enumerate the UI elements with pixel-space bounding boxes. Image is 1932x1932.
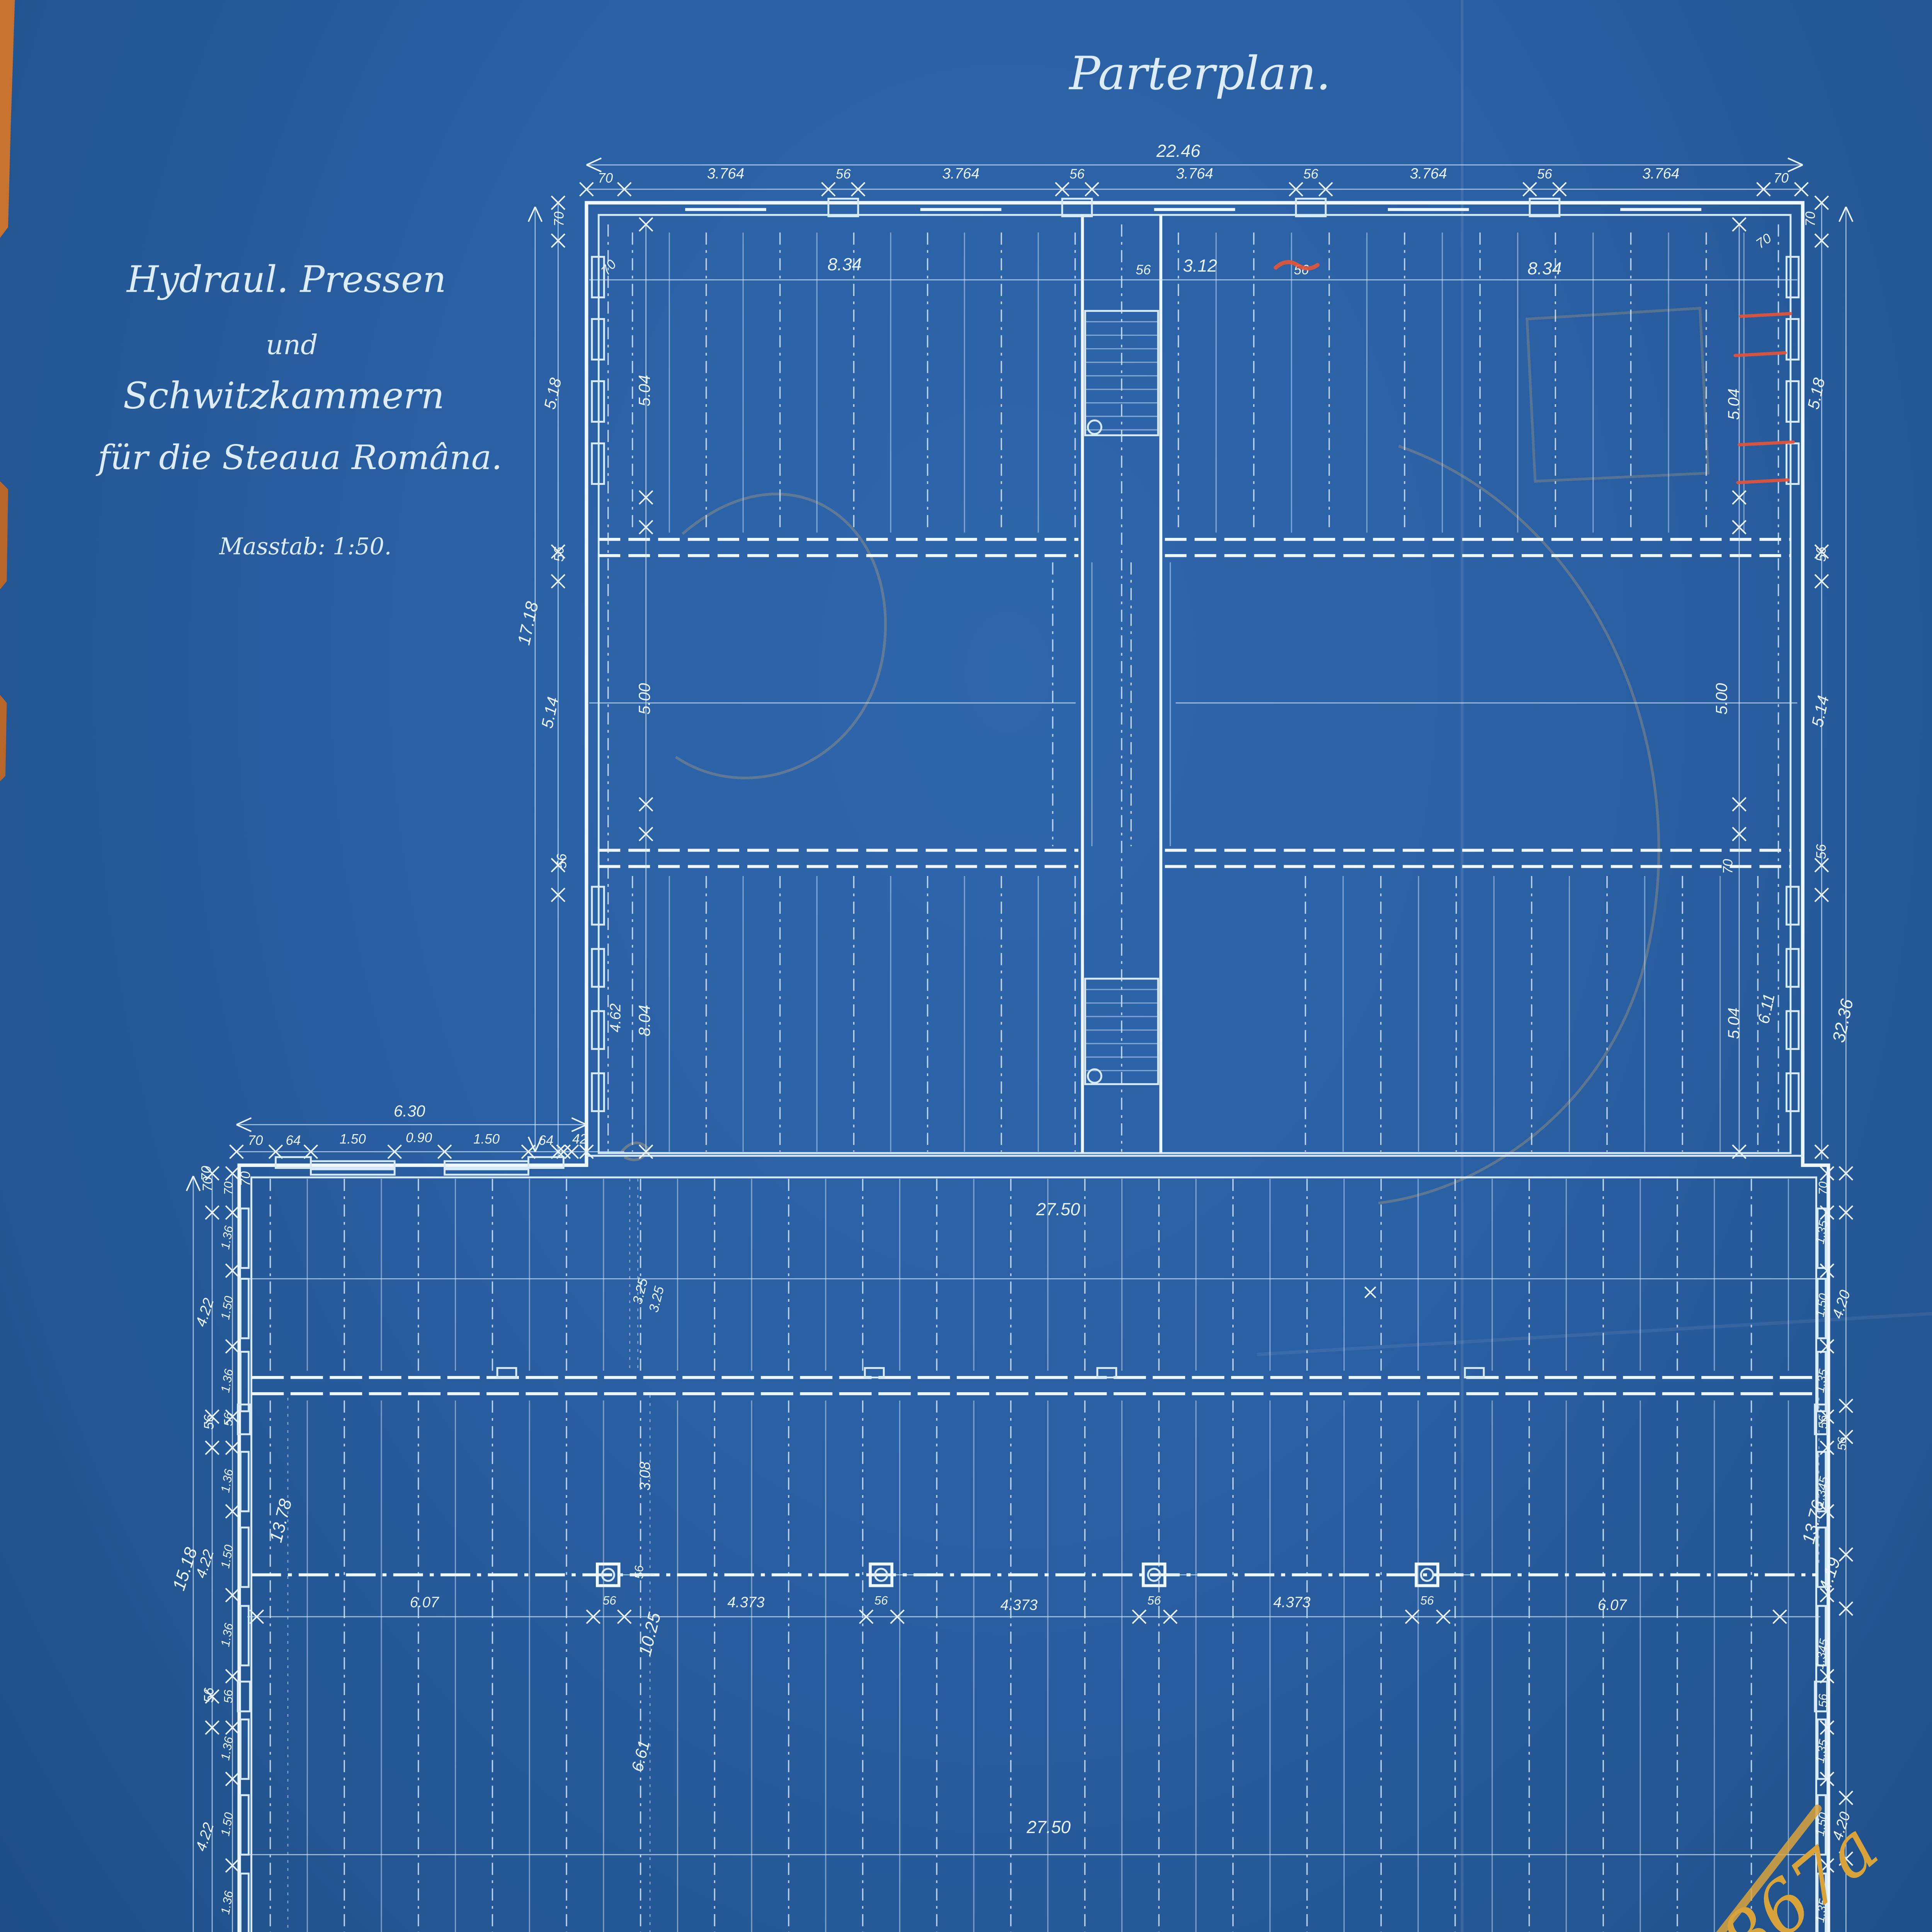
- legend-line-4: für die Steaua Româna.: [95, 438, 502, 477]
- dim-label: 1.36: [218, 1889, 236, 1915]
- dim-label: 8.04: [635, 1005, 653, 1036]
- dim-label: 56: [222, 1412, 235, 1426]
- dim-label: 6.30: [394, 1102, 425, 1120]
- dim-label: 5.18: [1804, 376, 1828, 411]
- dim-label: 22.46: [1156, 141, 1201, 161]
- dim-label: 70: [1774, 170, 1789, 185]
- dim-label: 4.373: [727, 1594, 765, 1611]
- dim-label: 1.36: [218, 1622, 236, 1648]
- dim-label: 5.14: [1808, 694, 1832, 729]
- paper-edge-orange-left-mid: [0, 481, 8, 589]
- dim-label: 6.07: [1598, 1597, 1627, 1614]
- dim-label: 70: [1816, 1181, 1830, 1195]
- dim-label: 56: [1420, 1594, 1434, 1607]
- floor-plan-drawing: 22.46703.764563.764563.764563.764563.764…: [0, 0, 1932, 1932]
- titles: Parterplan. Hydraul. Pressen und Schwitz…: [95, 47, 1331, 560]
- red-stroke-1: [1741, 314, 1791, 316]
- dim-label: 56: [551, 546, 566, 561]
- paper-edge-orange-left-lower: [0, 695, 7, 781]
- dim-label: 27.50: [1036, 1199, 1080, 1219]
- legend-line-2: und: [266, 330, 318, 361]
- dim-label: 56: [1816, 1694, 1830, 1708]
- dim-label: 56: [554, 853, 569, 868]
- dim-label: 56: [836, 167, 851, 182]
- dim-label: 5.00: [635, 683, 653, 715]
- dim-label: 70: [1721, 859, 1736, 874]
- red-stroke-4: [1738, 480, 1788, 483]
- dim-label: 70: [200, 1177, 215, 1192]
- dim-label: 1.36: [218, 1468, 236, 1494]
- dim-label: 56: [1835, 1437, 1849, 1451]
- dim-label: 3.25: [646, 1284, 667, 1314]
- dim-label: 56: [1147, 1594, 1161, 1607]
- dim-label: 56: [202, 1687, 217, 1702]
- dim-label: 3.764: [1176, 165, 1213, 182]
- dim-label: 4.22: [192, 1821, 217, 1854]
- dim-label: 5.18: [541, 376, 565, 411]
- dim-label: 3.08: [637, 1461, 653, 1490]
- dim-label: 56: [222, 1689, 235, 1703]
- dim-label: 1.50: [218, 1811, 236, 1837]
- dim-label: 1.36: [218, 1735, 236, 1761]
- dim-label: 3.764: [707, 165, 744, 182]
- dim-label: 27.50: [1026, 1817, 1071, 1837]
- red-stroke-2: [1735, 353, 1785, 355]
- dim-label: 70: [222, 1181, 235, 1195]
- dim-label: 8.34: [828, 255, 862, 274]
- joist-lines: [270, 233, 1788, 1932]
- dim-label: 56: [1136, 262, 1151, 277]
- dim-label: 56: [1814, 546, 1829, 561]
- pencil-rectangle-scribble: [1527, 308, 1708, 481]
- dim-label: 64: [286, 1133, 301, 1148]
- dim-label: 70: [248, 1133, 263, 1148]
- dim-label: 56: [603, 1594, 616, 1607]
- dim-label: 6.61: [628, 1738, 653, 1774]
- dim-label: 64: [538, 1133, 553, 1148]
- dim-label: 4.373: [1273, 1594, 1311, 1611]
- dim-label: 1.36: [218, 1225, 236, 1250]
- dim-label: 56: [633, 1565, 646, 1579]
- paper-edge-orange-top-left: [0, 0, 15, 238]
- sheet-title: Parterplan.: [1068, 47, 1331, 100]
- dim-label: 70: [551, 211, 566, 226]
- dim-label: 1.50: [218, 1295, 236, 1321]
- dim-label: 56: [1814, 844, 1829, 859]
- legend-line-3: Schwitzkammern: [123, 375, 445, 417]
- dim-label: 1.50: [340, 1132, 366, 1147]
- dim-label: 4.20: [1829, 1288, 1854, 1321]
- dim-label: 42: [572, 1132, 587, 1147]
- dim-label: 70: [598, 257, 619, 278]
- dim-label: 6.07: [410, 1594, 439, 1611]
- dim-label: 0.90: [406, 1130, 432, 1145]
- dim-label: 5.04: [1725, 388, 1743, 420]
- dim-label: 3.12: [1183, 256, 1217, 276]
- dim-label: 32.36: [1828, 997, 1857, 1044]
- dim-label: 70: [1753, 230, 1774, 252]
- dim-label: 3.25: [630, 1276, 651, 1306]
- scale-note: Masstab: 1:50.: [219, 533, 391, 560]
- file-mark: J2: [1852, 1924, 1932, 1932]
- blueprint-sheet: 22.46703.764563.764563.764563.764563.764…: [0, 0, 1932, 1932]
- dim-label: 56: [202, 1414, 217, 1429]
- dim-label: 1.50: [473, 1132, 500, 1147]
- dim-label: 4.62: [607, 1003, 624, 1032]
- dim-label: 3.764: [1642, 165, 1679, 182]
- dim-label: 56: [1816, 1415, 1830, 1429]
- dim-label: 5.04: [635, 375, 653, 406]
- dim-label: 70: [238, 1171, 253, 1186]
- dim-label: 1.50: [218, 1544, 236, 1570]
- dim-label: 56: [1537, 167, 1552, 182]
- archive-marks: 3867a J2 65 6/9. 904. 4,: [1592, 1806, 1932, 1932]
- red-stroke-3: [1739, 442, 1793, 445]
- dim-label: 70: [598, 170, 613, 185]
- dim-label: 3.764: [1410, 165, 1447, 182]
- dim-label: 17.18: [514, 599, 543, 647]
- pencil-circle-scribble: [676, 494, 886, 778]
- dim-label: 56: [874, 1594, 888, 1607]
- dim-label: 10.25: [635, 1610, 665, 1658]
- dim-label: 4.373: [1000, 1597, 1038, 1614]
- pencil-arc-scribble: [1378, 446, 1659, 1203]
- dim-label: 70: [1803, 211, 1818, 226]
- legend-line-1: Hydraul. Pressen: [126, 259, 446, 301]
- dim-label: 8.34: [1527, 259, 1561, 278]
- dim-label: 1.36: [218, 1368, 236, 1394]
- dim-label: 56: [1303, 167, 1318, 182]
- inventory-number: 3867a: [1672, 1806, 1893, 1932]
- dim-label: 5.04: [1725, 1007, 1743, 1039]
- dim-label: 5.00: [1713, 683, 1731, 715]
- dim-label: 4.22: [192, 1296, 217, 1329]
- dim-label: 3.764: [942, 165, 979, 182]
- dim-label: 56: [1070, 167, 1085, 182]
- pencil-scribbles: [622, 308, 1708, 1203]
